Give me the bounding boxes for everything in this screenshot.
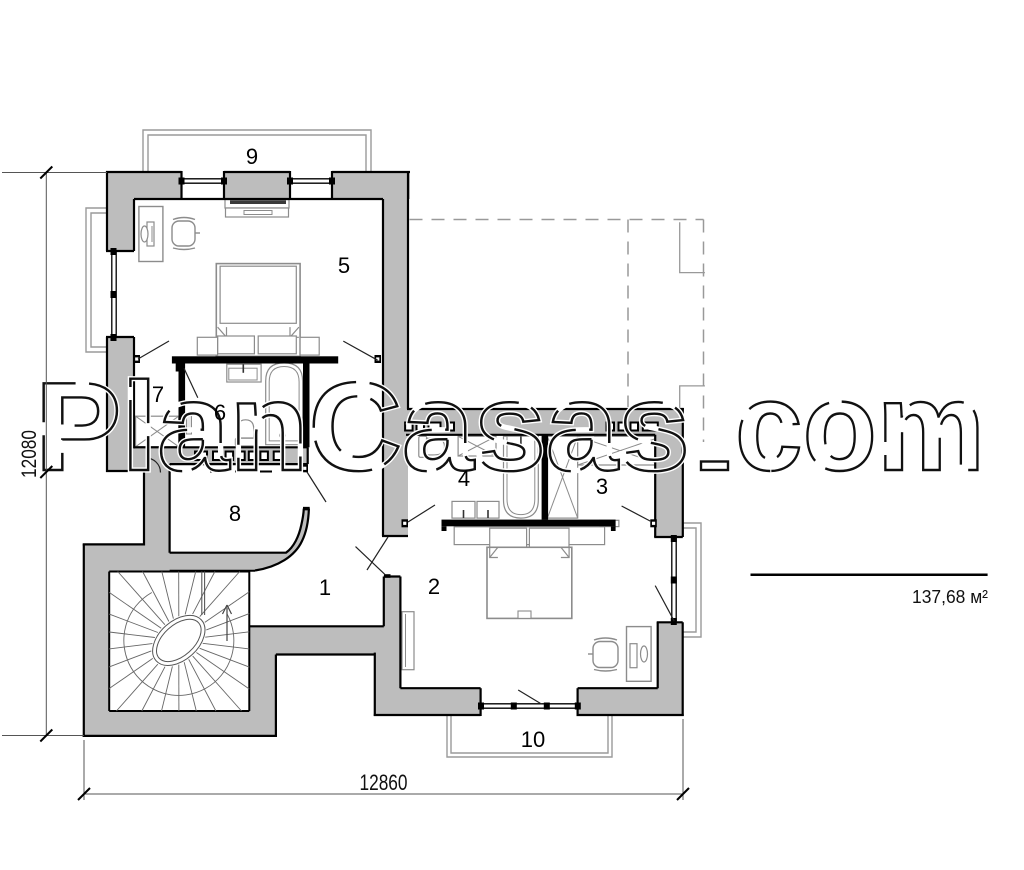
svg-text:12080: 12080 — [17, 430, 41, 478]
svg-text:PlanCasas: PlanCasas — [35, 356, 690, 497]
svg-text:1: 1 — [319, 575, 331, 600]
svg-text:4: 4 — [458, 466, 470, 491]
svg-text:5: 5 — [338, 253, 350, 278]
svg-text:com: com — [735, 356, 985, 497]
svg-text:3: 3 — [596, 474, 608, 499]
svg-text:8: 8 — [229, 501, 241, 526]
svg-text:10: 10 — [521, 727, 545, 752]
svg-text:9: 9 — [246, 144, 258, 169]
svg-text:12860: 12860 — [360, 770, 408, 795]
svg-text:2: 2 — [428, 574, 440, 599]
svg-text:6: 6 — [214, 400, 226, 425]
svg-text:7: 7 — [152, 382, 164, 407]
svg-text:137,68 м²: 137,68 м² — [912, 586, 988, 607]
